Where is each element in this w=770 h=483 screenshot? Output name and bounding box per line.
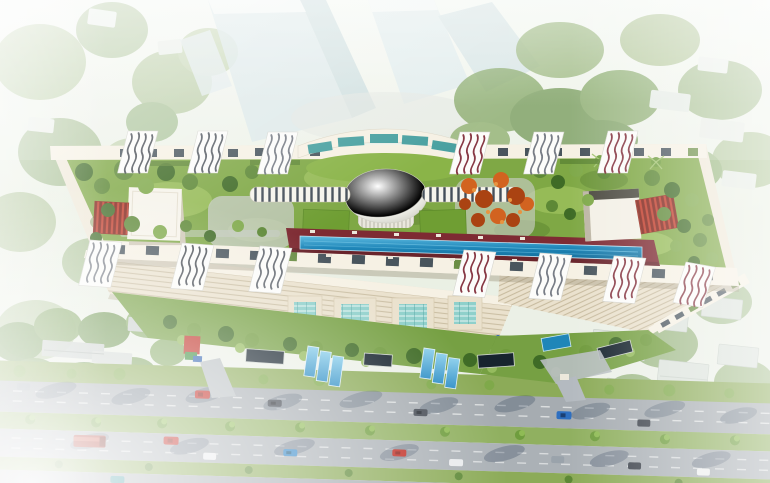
haze-left — [0, 0, 770, 483]
aerial-architectural-rendering — [0, 0, 770, 483]
